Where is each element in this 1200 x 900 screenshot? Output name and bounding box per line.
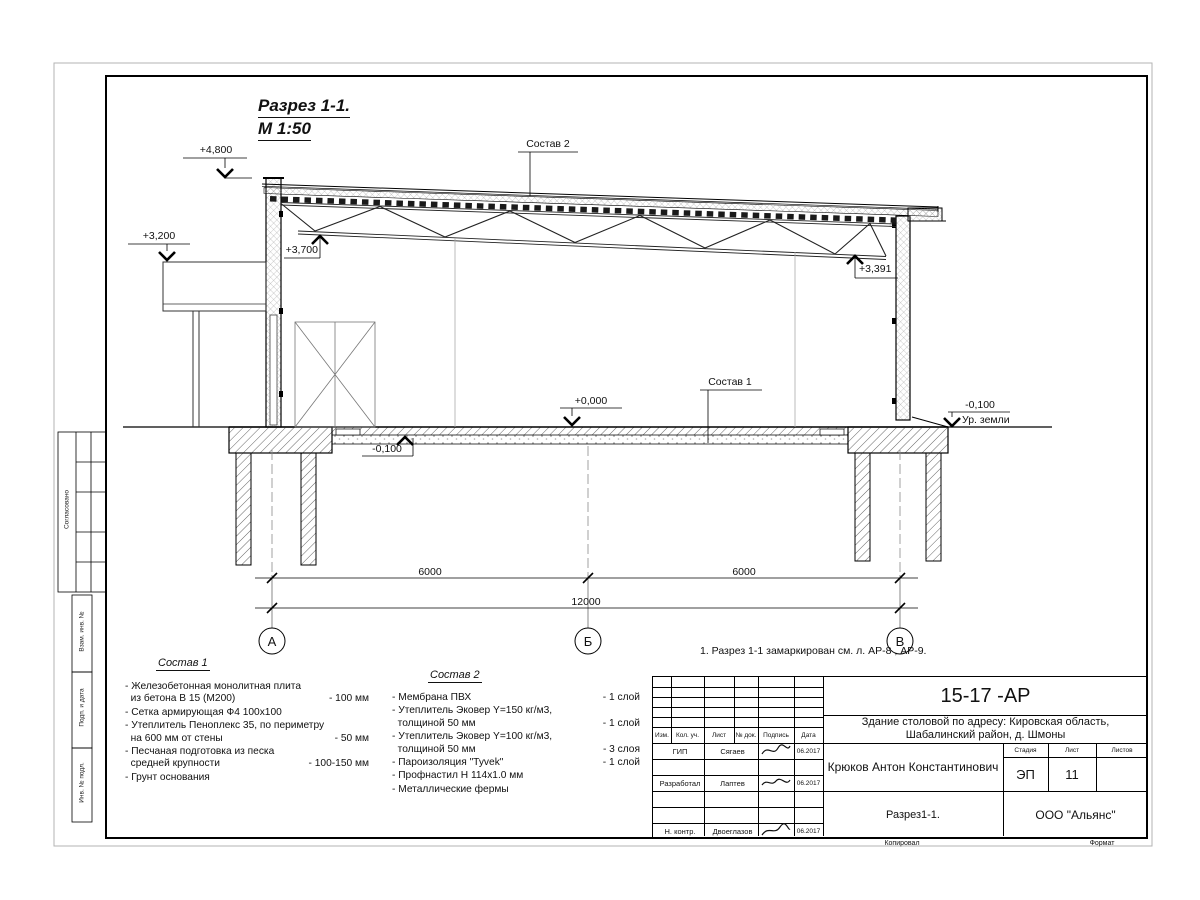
note-text: 1. Разрез 1-1 замаркирован см. л. АР-8 ,… — [700, 645, 926, 657]
signature-icon — [760, 775, 792, 790]
dim-span2: 6000 — [714, 566, 774, 578]
tb-name: Лаптев — [704, 775, 758, 791]
legend2-item: - Утеплитель Эковер Y=150 кг/м3, толщино… — [392, 705, 640, 730]
margin-label-approved: Согласовано — [64, 435, 71, 585]
elevation-truss-right: +3,391 — [859, 263, 891, 275]
tb-project-name: Здание столовой по адресу: Кировская обл… — [823, 715, 1148, 743]
legend2-item: - Утеплитель Эковер Y=100 кг/м3, толщино… — [392, 731, 640, 756]
roof — [262, 184, 946, 221]
tb-sheet-title: Разрез1-1. — [823, 791, 1003, 839]
tb-role: Разработал — [653, 775, 704, 791]
legend1-item: - Песчаная подготовка из песка средней к… — [125, 746, 369, 771]
callout-roof: Состав 2 — [516, 138, 580, 150]
tb-col-kol: Кол. уч. — [671, 727, 704, 743]
right-wall — [892, 216, 910, 420]
legend1-item: - Железобетонная монолитная плита из бет… — [125, 681, 369, 706]
legend1-item: - Сетка армирующая Ф4 100х100 — [125, 707, 369, 719]
tb-signature — [758, 741, 794, 759]
elevation-slab-bottom: -0,100 — [363, 443, 411, 455]
tb-footer-copied: Копировал — [857, 840, 947, 847]
legend2-item: - Профнастил Н 114х1.0 мм — [392, 770, 640, 782]
tb-author: Крюков Антон Константинович — [823, 743, 1003, 791]
callout-floor: Состав 1 — [698, 376, 762, 388]
legend2-item: - Мембрана ПВХ- 1 слой — [392, 692, 640, 704]
legend1-list: - Железобетонная монолитная плита из бет… — [125, 681, 369, 785]
tb-col-list: Лист — [704, 727, 734, 743]
canopy — [163, 262, 266, 427]
ground-and-slab — [123, 417, 1052, 453]
tb-sheets-label: Листов — [1096, 743, 1148, 757]
axis-centerlines — [272, 446, 900, 575]
tb-doc-code: 15-17 -АР — [823, 677, 1148, 715]
tb-role: Н. контр. — [653, 823, 704, 839]
margin-label-inv: Инв. № подл. — [79, 748, 86, 818]
foundation-piles — [236, 453, 941, 565]
dim-span1: 6000 — [400, 566, 460, 578]
tb-stage-label: Стадия — [1003, 743, 1048, 757]
tb-sheet-label: Лист — [1048, 743, 1096, 757]
drawing-scale: М 1:50 — [258, 119, 311, 141]
elevation-canopy: +3,200 — [128, 230, 190, 242]
margin-label-vzam: Взам. инв. № — [79, 597, 86, 667]
tb-sheet-value: 11 — [1048, 757, 1096, 791]
elevation-floor: +0,000 — [560, 395, 622, 407]
tb-col-izm: Изм. — [653, 727, 671, 743]
elevation-top: +4,800 — [185, 144, 247, 156]
axis-b: Б — [575, 634, 601, 649]
elevation-truss-left: +3,700 — [280, 244, 318, 256]
ground-level-label: Ур. земли — [962, 414, 1010, 426]
tb-sheets-value — [1096, 757, 1148, 791]
signature-icon — [760, 823, 792, 838]
legend2-title: Состав 2 — [428, 669, 482, 683]
margin-label-podp: Подп. и дата — [79, 673, 86, 743]
drawing-title: Разрез 1-1. — [258, 96, 350, 118]
legend2-list: - Мембрана ПВХ- 1 слой - Утеплитель Эков… — [392, 692, 640, 797]
tb-role: ГИП — [653, 743, 704, 759]
tb-footer-format: Формат — [1067, 840, 1137, 847]
dim-total: 12000 — [556, 596, 616, 608]
legend1-item: - Утеплитель Пеноплекс 35, по периметру … — [125, 720, 369, 745]
tb-name: Двоеглазов — [704, 823, 758, 839]
tb-date: 06.2017 — [794, 823, 823, 839]
drawing-sheet: { "drawing": { "title_line1": "Разрез 1-… — [0, 0, 1200, 900]
tb-company: ООО "Альянс" — [1003, 791, 1148, 839]
tb-col-date: Дата — [794, 727, 823, 743]
tb-col-doc: № док. — [734, 727, 758, 743]
interior-door — [295, 322, 375, 427]
title-block: Изм. Кол. уч. Лист № док. Подпись Дата Г… — [652, 676, 1147, 838]
legend2-item: - Металлические фермы — [392, 784, 640, 796]
truss — [281, 203, 896, 428]
axis-a: А — [259, 634, 285, 649]
tb-signature — [758, 821, 794, 839]
tb-stage-value: ЭП — [1003, 757, 1048, 791]
callout-leaders — [518, 152, 762, 443]
legend1-title: Состав 1 — [156, 657, 210, 671]
tb-name: Сягаев — [704, 743, 758, 759]
tb-date: 06.2017 — [794, 775, 823, 791]
tb-date: 06.2017 — [794, 743, 823, 759]
legend1-item: - Грунт основания — [125, 772, 369, 784]
elevation-ground: -0,100 — [950, 399, 1010, 411]
tb-signature — [758, 773, 794, 791]
legend2-item: - Пароизоляция "Tyvek"- 1 слой — [392, 757, 640, 769]
signature-icon — [760, 743, 792, 758]
